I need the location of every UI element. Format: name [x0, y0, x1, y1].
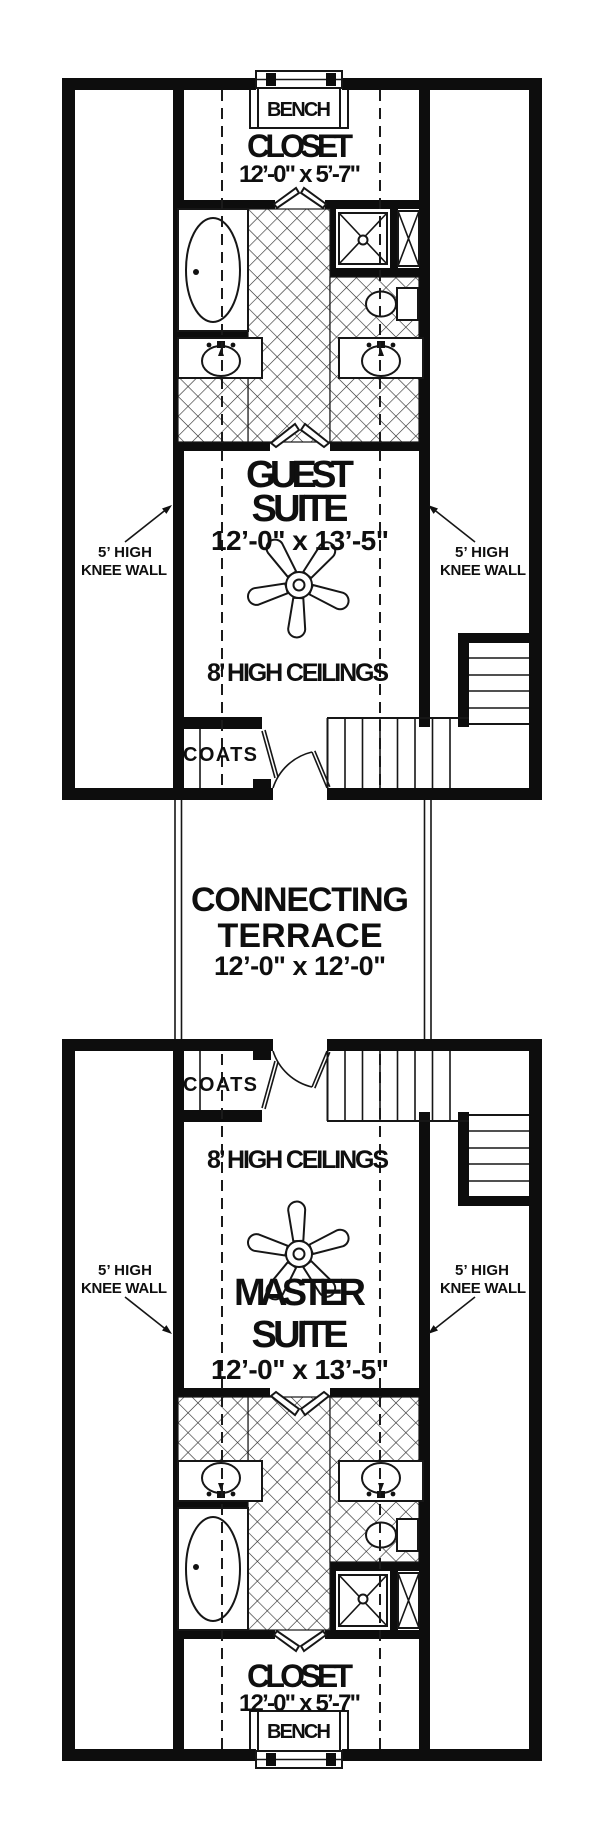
upper-ceiling-note: 8’ HIGH CEILINGS — [207, 659, 389, 687]
lower-ceiling-note: 8’ HIGH CEILINGS — [207, 1146, 389, 1174]
terrace-label-line1: CONNECTING — [191, 881, 409, 919]
lower-closet-dims: 12’-0" x 5’-7" — [239, 1690, 361, 1717]
terrace-dims: 12’-0" x 12’-0" — [214, 951, 386, 981]
guest-suite-label-line2: SUITE — [252, 488, 349, 530]
upper-closet-label: CLOSET — [247, 128, 353, 164]
guest-suite-dims: 12’-0" x 13’-5" — [211, 525, 389, 556]
upper-knee-wall-right-line1: 5’ HIGH — [455, 544, 509, 561]
lower-knee-wall-left-line1: 5’ HIGH — [98, 1262, 152, 1279]
lower-knee-wall-right-line1: 5’ HIGH — [455, 1262, 509, 1279]
master-suite-label-line1: MASTER — [234, 1272, 366, 1314]
upper-knee-wall-left-line1: 5’ HIGH — [98, 544, 152, 561]
lower-knee-wall-right-line2: KNEE WALL — [440, 1280, 526, 1297]
lower-coats-label: COATS — [183, 1074, 257, 1096]
upper-coats-label: COATS — [183, 744, 257, 766]
upper-closet-dims: 12’-0" x 5’-7" — [239, 161, 361, 188]
lower-knee-wall-left-line2: KNEE WALL — [81, 1280, 167, 1297]
upper-knee-wall-left-line2: KNEE WALL — [81, 562, 167, 579]
upper-bench-label: BENCH — [267, 99, 331, 121]
master-suite-dims: 12’-0" x 13’-5" — [211, 1354, 389, 1385]
lower-closet-label: CLOSET — [247, 1658, 353, 1694]
terrace-label-line2: TERRACE — [218, 917, 383, 955]
lower-bench-label: BENCH — [267, 1721, 331, 1743]
upper-knee-wall-right-line2: KNEE WALL — [440, 562, 526, 579]
master-suite-label-line2: SUITE — [252, 1314, 349, 1356]
floor-plan: BENCH CLOSET 12’-0" x 5’-7" GUEST SUITE … — [0, 0, 600, 1840]
